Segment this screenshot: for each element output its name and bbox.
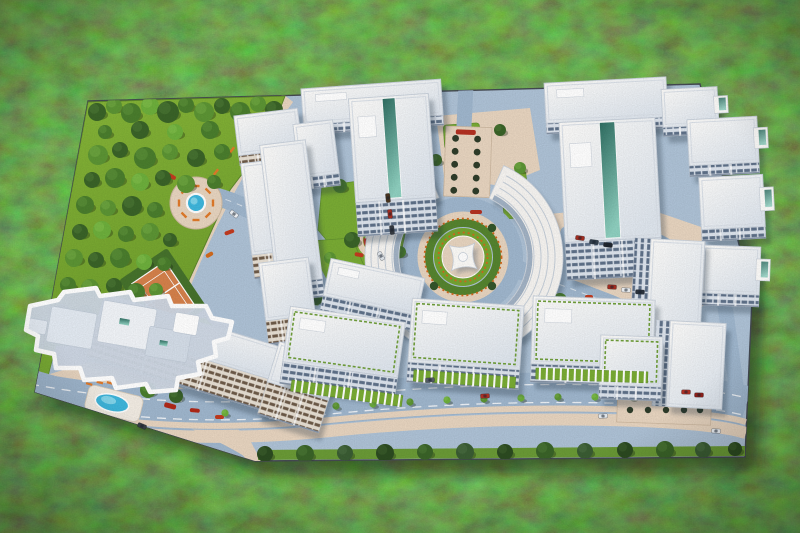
vignette [0, 0, 800, 533]
model-photo [0, 0, 800, 533]
scene-svg [0, 0, 800, 533]
